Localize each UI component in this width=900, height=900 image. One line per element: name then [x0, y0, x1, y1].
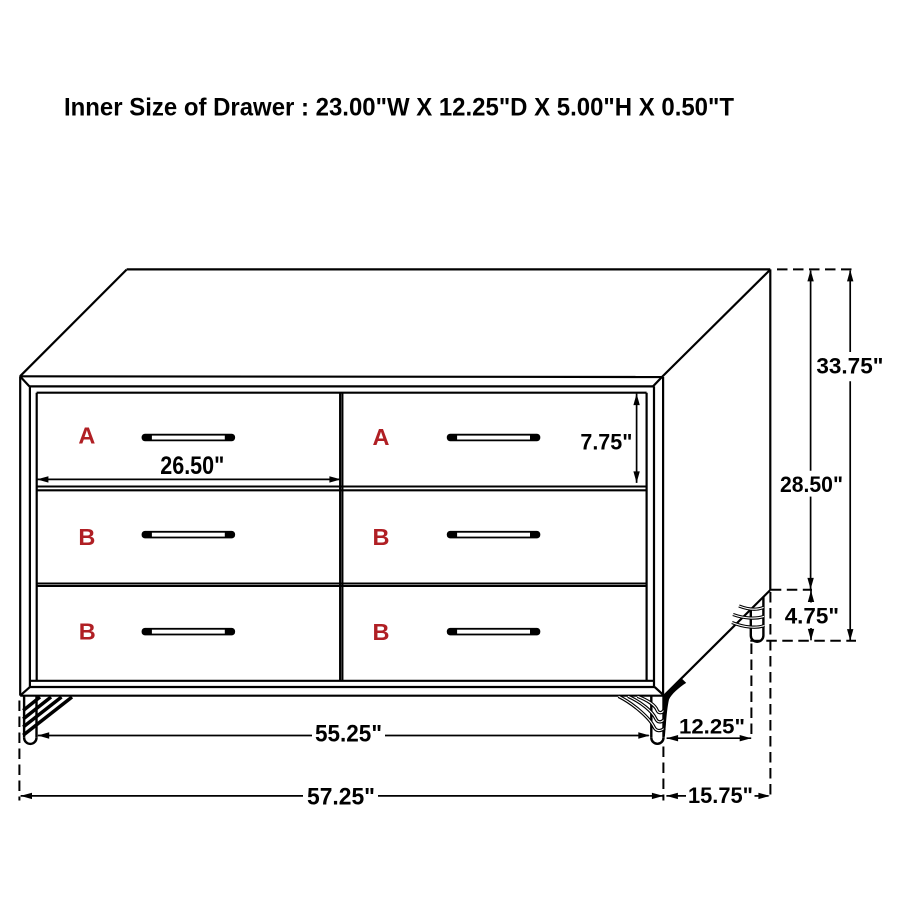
svg-text:7.75": 7.75": [580, 430, 632, 455]
svg-text:B: B: [373, 619, 390, 645]
svg-text:4.75": 4.75": [785, 604, 839, 629]
svg-text:15.75": 15.75": [688, 783, 753, 808]
svg-text:A: A: [78, 423, 95, 449]
svg-text:B: B: [79, 619, 96, 645]
svg-text:33.75": 33.75": [816, 353, 883, 378]
svg-text:28.50": 28.50": [780, 472, 843, 497]
svg-text:57.25": 57.25": [307, 783, 375, 810]
svg-text:55.25": 55.25": [315, 721, 382, 748]
svg-text:Inner Size of Drawer : 23.00"W: Inner Size of Drawer : 23.00"W X 12.25"D…: [64, 94, 734, 122]
svg-text:A: A: [373, 424, 390, 450]
svg-text:B: B: [373, 524, 390, 550]
svg-text:12.25": 12.25": [679, 715, 745, 738]
svg-text:26.50": 26.50": [160, 452, 224, 480]
svg-text:B: B: [78, 524, 95, 550]
